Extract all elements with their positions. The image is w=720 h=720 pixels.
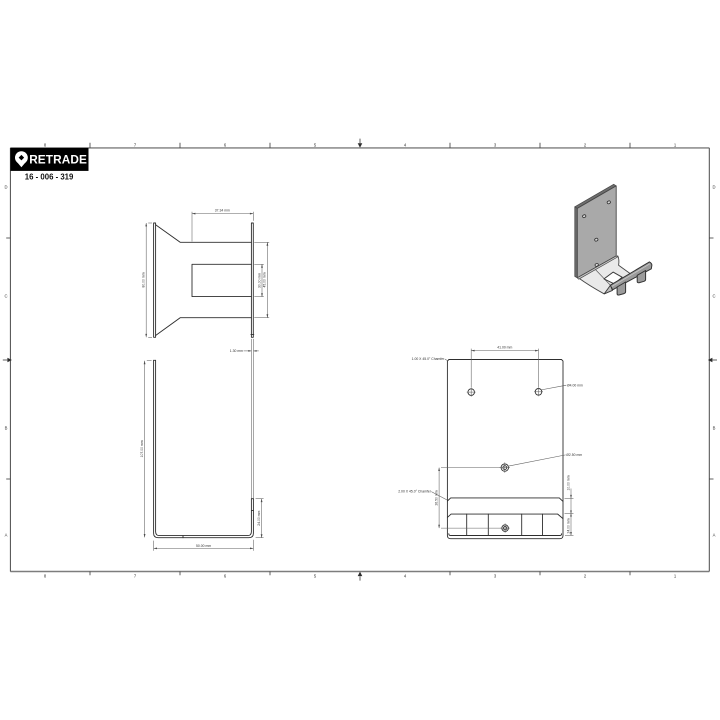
svg-text:D: D <box>712 185 715 190</box>
svg-text:107.00 mm: 107.00 mm <box>140 440 144 457</box>
svg-text:C: C <box>4 294 7 299</box>
svg-text:45.00 mm: 45.00 mm <box>263 272 267 287</box>
svg-text:A: A <box>713 533 716 538</box>
svg-text:D: D <box>4 185 7 190</box>
svg-text:16 - 006 - 319: 16 - 006 - 319 <box>25 172 74 181</box>
svg-text:24.00 mm: 24.00 mm <box>257 510 261 525</box>
svg-text:30.00 mm: 30.00 mm <box>257 273 261 288</box>
svg-text:A: A <box>5 533 8 538</box>
svg-text:50.00 mm: 50.00 mm <box>196 544 211 548</box>
svg-text:Ø4.00 mm: Ø4.00 mm <box>567 383 583 387</box>
svg-text:80.00 mm: 80.00 mm <box>142 272 146 287</box>
svg-text:C: C <box>712 294 715 299</box>
svg-text:2.00 X 45.0° Chamfer: 2.00 X 45.0° Chamfer <box>398 490 432 494</box>
svg-text:1.00 X 45.0° Chamfer: 1.00 X 45.0° Chamfer <box>412 357 446 361</box>
svg-text:37.34 mm: 37.34 mm <box>215 209 230 213</box>
svg-text:41.00 mm: 41.00 mm <box>497 346 512 350</box>
svg-text:24.00 mm: 24.00 mm <box>566 518 570 533</box>
svg-text:RETRADE: RETRADE <box>29 152 87 166</box>
svg-text:B: B <box>713 426 716 431</box>
svg-text:26.50 mm: 26.50 mm <box>434 490 438 505</box>
svg-text:1.30 mm: 1.30 mm <box>230 349 243 353</box>
svg-text:Ø2.50 mm: Ø2.50 mm <box>566 453 582 457</box>
svg-text:B: B <box>5 426 8 431</box>
svg-text:10.00 mm: 10.00 mm <box>566 475 570 490</box>
